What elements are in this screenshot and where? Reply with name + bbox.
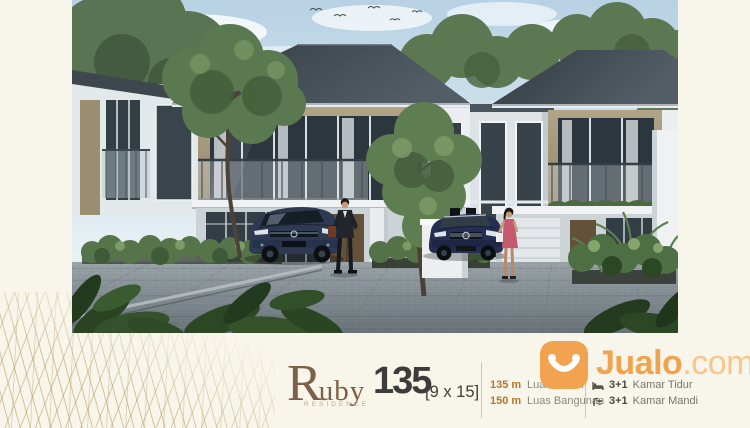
jualo-brand: Jualo [596,344,682,382]
jualo-suffix: .com [682,344,750,382]
shower-icon [592,397,604,407]
bathroom-value: 3+1 [609,395,628,408]
property-render-photo [72,0,678,333]
jualo-logo-badge [540,341,588,389]
building-value: 150 m [490,395,527,408]
divider-line [481,362,482,418]
type-number: 135 [373,362,430,400]
advertisement-banner: Ruby RESIDENCE 135 [9 x 15] 135 m Luas T… [0,0,750,428]
spec-building-area: 150 m Luas Bangunan [490,395,604,408]
lot-dimension: [9 x 15] [425,384,479,401]
bathroom-label: Kamar Mandi [633,395,698,408]
smile-bag-icon [540,341,588,389]
spec-bathrooms: 3+1 Kamar Mandi [592,395,698,408]
jualo-wordmark: Jualo.com [596,346,750,380]
land-value: 135 m [490,379,527,392]
logo-subtitle: RESIDENCE [304,401,369,408]
bed-icon [592,381,604,391]
